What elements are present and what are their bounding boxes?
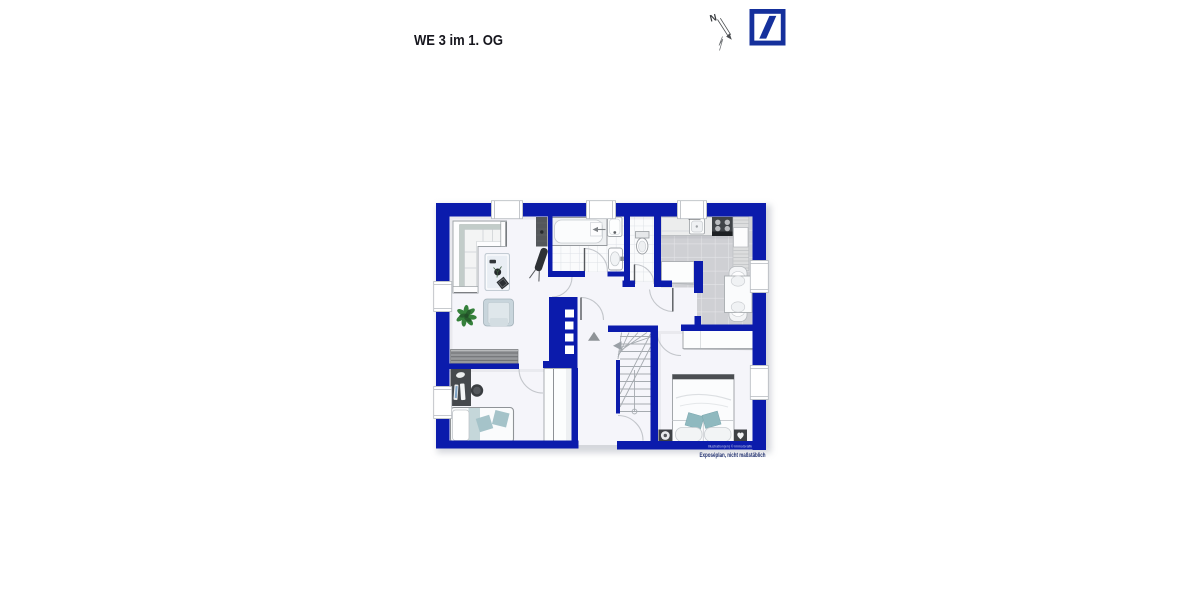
svg-text:Exposéplan, nicht maßstäblich: Exposéplan, nicht maßstäblich	[700, 452, 766, 459]
svg-text:Illustration(en) © immoGrafik: Illustration(en) © immoGrafik	[708, 444, 752, 448]
svg-text:WE 3 im 1. OG: WE 3 im 1. OG	[414, 33, 503, 49]
